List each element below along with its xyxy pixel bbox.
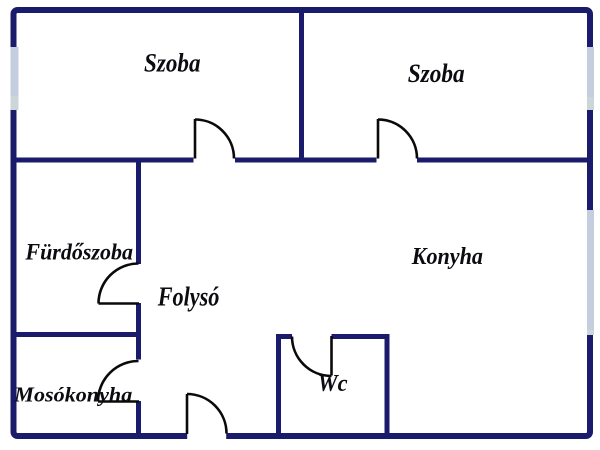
svg-text:Konyha: Konyha [411, 244, 483, 270]
svg-text:Mosókonyha: Mosókonyha [13, 383, 132, 407]
svg-text:Wc: Wc [318, 370, 348, 397]
svg-text:Szoba: Szoba [408, 59, 465, 88]
svg-text:Szoba: Szoba [144, 49, 201, 78]
svg-text:Folysó: Folysó [157, 282, 220, 312]
svg-text:Fürdőszoba: Fürdőszoba [24, 239, 133, 265]
